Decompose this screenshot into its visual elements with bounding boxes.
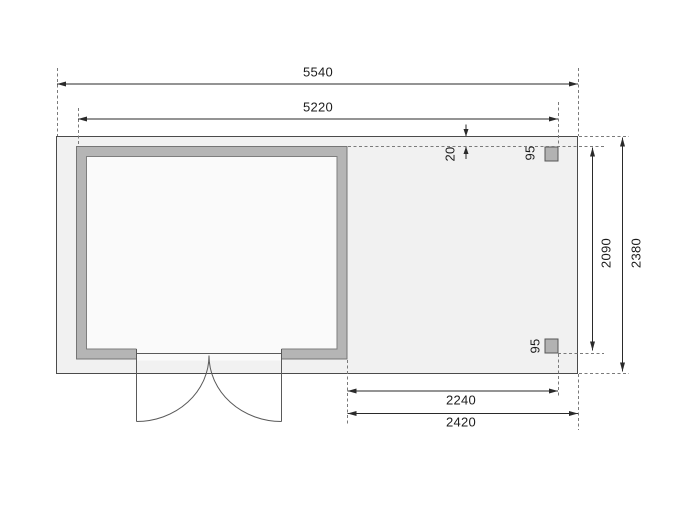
dimension-wall-to-post-width [78,117,558,122]
canopy-post-top [545,147,558,161]
dimension-label-overall-depth: 2380 [630,238,643,268]
shed-interior [87,157,338,350]
dimension-overall-depth [620,138,625,372]
dimension-label-post-depth: 2090 [600,238,613,268]
dimension-label-post-width-top: 95 [524,145,537,160]
dimension-post-depth [590,148,595,351]
dimension-label-canopy-width-outer: 2420 [446,416,476,429]
dimension-overall-width [57,82,578,87]
shed-floor-plan-drawing [0,0,700,525]
dimension-label-post-width-bottom: 95 [529,338,542,353]
canopy-post-bottom [545,339,558,353]
dimension-label-wall-to-post-width: 5220 [303,101,333,114]
dimension-label-edge-offset: 20 [444,146,457,161]
shed-floor-plan-page: 5540 5220 20 95 2090 2380 95 2240 2420 [0,0,700,525]
dimension-label-overall-width: 5540 [303,66,333,79]
dimension-label-canopy-width-inner: 2240 [446,394,476,407]
